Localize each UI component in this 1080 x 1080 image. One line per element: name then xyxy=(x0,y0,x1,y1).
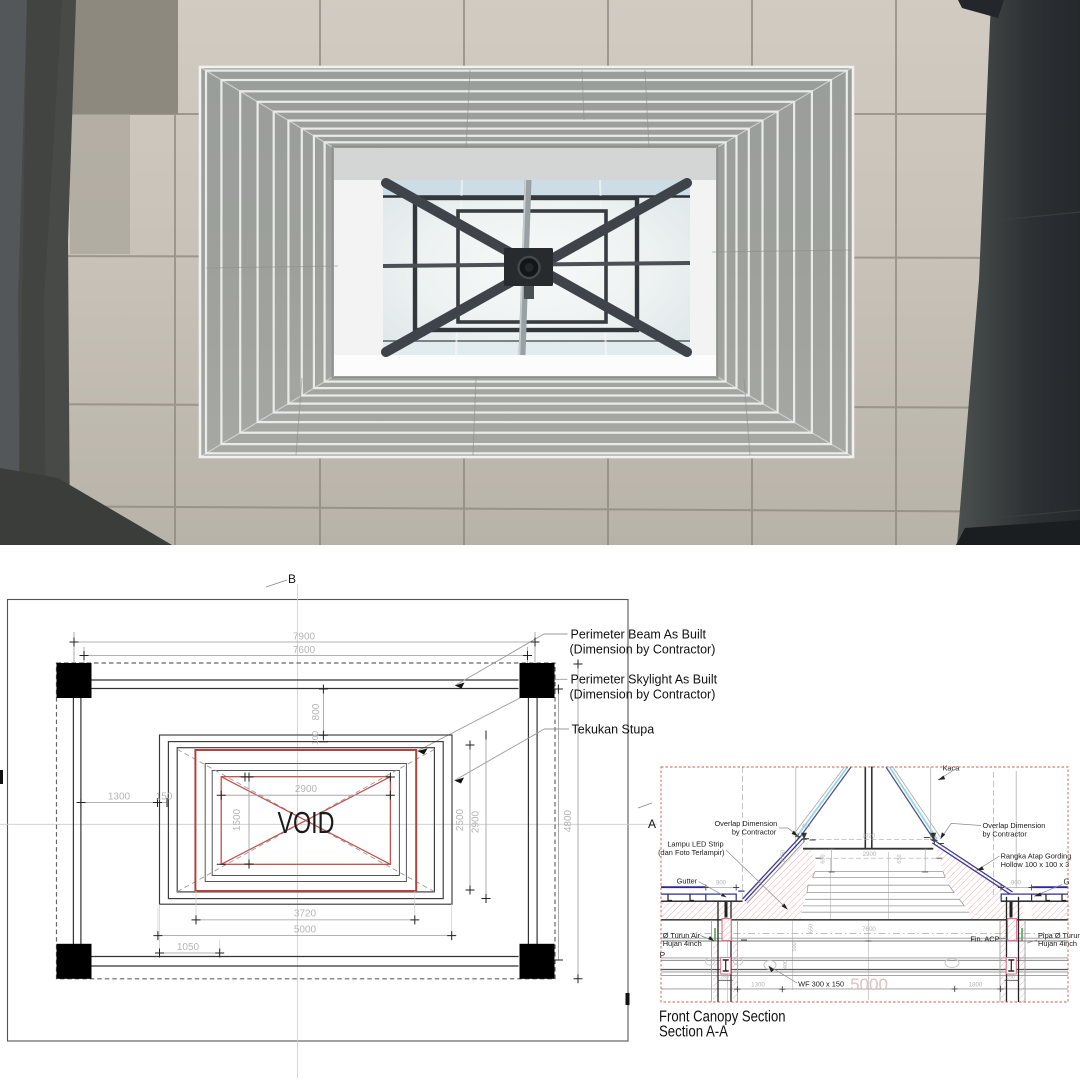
svg-text:4800: 4800 xyxy=(563,809,574,832)
svg-text:Fin. ACP: Fin. ACP xyxy=(970,934,999,943)
svg-text:3720: 3720 xyxy=(294,909,317,920)
svg-text:2900: 2900 xyxy=(471,810,482,833)
svg-text:Hujan 4inch: Hujan 4inch xyxy=(1038,939,1077,948)
svg-text:Gutter: Gutter xyxy=(677,877,698,886)
svg-text:by Contractor: by Contractor xyxy=(732,827,777,836)
svg-text:1800: 1800 xyxy=(969,981,983,988)
svg-text:VOID: VOID xyxy=(278,805,335,840)
svg-text:2900: 2900 xyxy=(863,851,877,858)
svg-text:5000: 5000 xyxy=(294,925,317,936)
svg-text:250: 250 xyxy=(1006,974,1015,980)
svg-text:Section A-A: Section A-A xyxy=(659,1024,729,1041)
svg-text:650: 650 xyxy=(821,854,827,863)
svg-text:900: 900 xyxy=(1011,881,1022,887)
svg-text:2500: 2500 xyxy=(455,808,466,831)
svg-text:WF 300 x 150: WF 300 x 150 xyxy=(798,980,844,989)
svg-text:100: 100 xyxy=(310,731,320,745)
svg-text:7600: 7600 xyxy=(862,926,876,933)
svg-text:900: 900 xyxy=(716,881,727,887)
svg-text:2900: 2900 xyxy=(295,784,318,795)
svg-text:250: 250 xyxy=(720,974,729,980)
svg-text:800: 800 xyxy=(311,703,322,720)
svg-text:1050: 1050 xyxy=(177,942,200,953)
svg-text:Perimeter Skylight As Built: Perimeter Skylight As Built xyxy=(571,673,718,687)
svg-text:G: G xyxy=(1064,878,1070,887)
svg-text:1300: 1300 xyxy=(108,792,131,803)
svg-text:1300: 1300 xyxy=(751,981,765,988)
svg-text:(Dimension by Contractor): (Dimension by Contractor) xyxy=(570,643,716,657)
svg-text:410: 410 xyxy=(802,824,811,830)
svg-text:400: 400 xyxy=(783,960,789,969)
svg-text:A: A xyxy=(648,817,656,831)
svg-text:500: 500 xyxy=(792,942,798,951)
svg-text:Hollow 100 x 100 x 3: Hollow 100 x 100 x 3 xyxy=(1001,860,1070,869)
svg-text:650: 650 xyxy=(809,924,815,933)
svg-text:P: P xyxy=(660,950,666,960)
svg-text:Rangka Atap Gording: Rangka Atap Gording xyxy=(1001,851,1072,860)
svg-text:Perimeter Beam As Built: Perimeter Beam As Built xyxy=(571,628,707,642)
svg-text:Hujan 4inch: Hujan 4inch xyxy=(663,939,702,948)
svg-text:7600: 7600 xyxy=(293,645,316,656)
svg-text:5000: 5000 xyxy=(850,975,888,994)
svg-text:(Dimension by Contractor): (Dimension by Contractor) xyxy=(570,688,716,702)
svg-text:150: 150 xyxy=(156,792,173,803)
svg-text:3720: 3720 xyxy=(863,834,875,840)
svg-text:B: B xyxy=(288,572,296,586)
svg-text:650: 650 xyxy=(897,854,903,863)
svg-text:Tekukan Stupa: Tekukan Stupa xyxy=(572,723,655,737)
svg-text:Kaca: Kaca xyxy=(943,763,961,772)
svg-text:by Contractor: by Contractor xyxy=(983,829,1028,838)
svg-text:7900: 7900 xyxy=(293,632,316,643)
svg-text:2050: 2050 xyxy=(781,850,787,862)
svg-text:(dan Foto Terlampir): (dan Foto Terlampir) xyxy=(658,848,724,857)
svg-text:1500: 1500 xyxy=(232,808,243,831)
